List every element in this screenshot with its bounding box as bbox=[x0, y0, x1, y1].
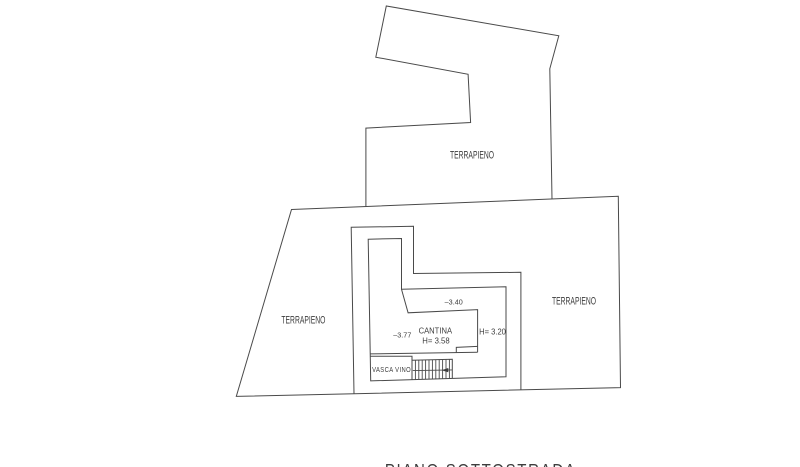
svg-text:PIANO SOTTOSTRADA: PIANO SOTTOSTRADA bbox=[385, 460, 577, 467]
svg-text:TERRAPIENO: TERRAPIENO bbox=[450, 149, 494, 161]
svg-text:CANTINA: CANTINA bbox=[419, 326, 453, 335]
svg-text:TERRAPIENO: TERRAPIENO bbox=[281, 314, 325, 326]
svg-text:H= 3.58: H= 3.58 bbox=[422, 336, 450, 345]
svg-text:TERRAPIENO: TERRAPIENO bbox=[552, 295, 596, 307]
svg-text:–3.40: –3.40 bbox=[445, 297, 463, 306]
svg-text:–3.77: –3.77 bbox=[393, 330, 411, 339]
svg-text:H= 3.20: H= 3.20 bbox=[479, 328, 506, 337]
svg-text:VASCA VINO: VASCA VINO bbox=[372, 367, 411, 375]
